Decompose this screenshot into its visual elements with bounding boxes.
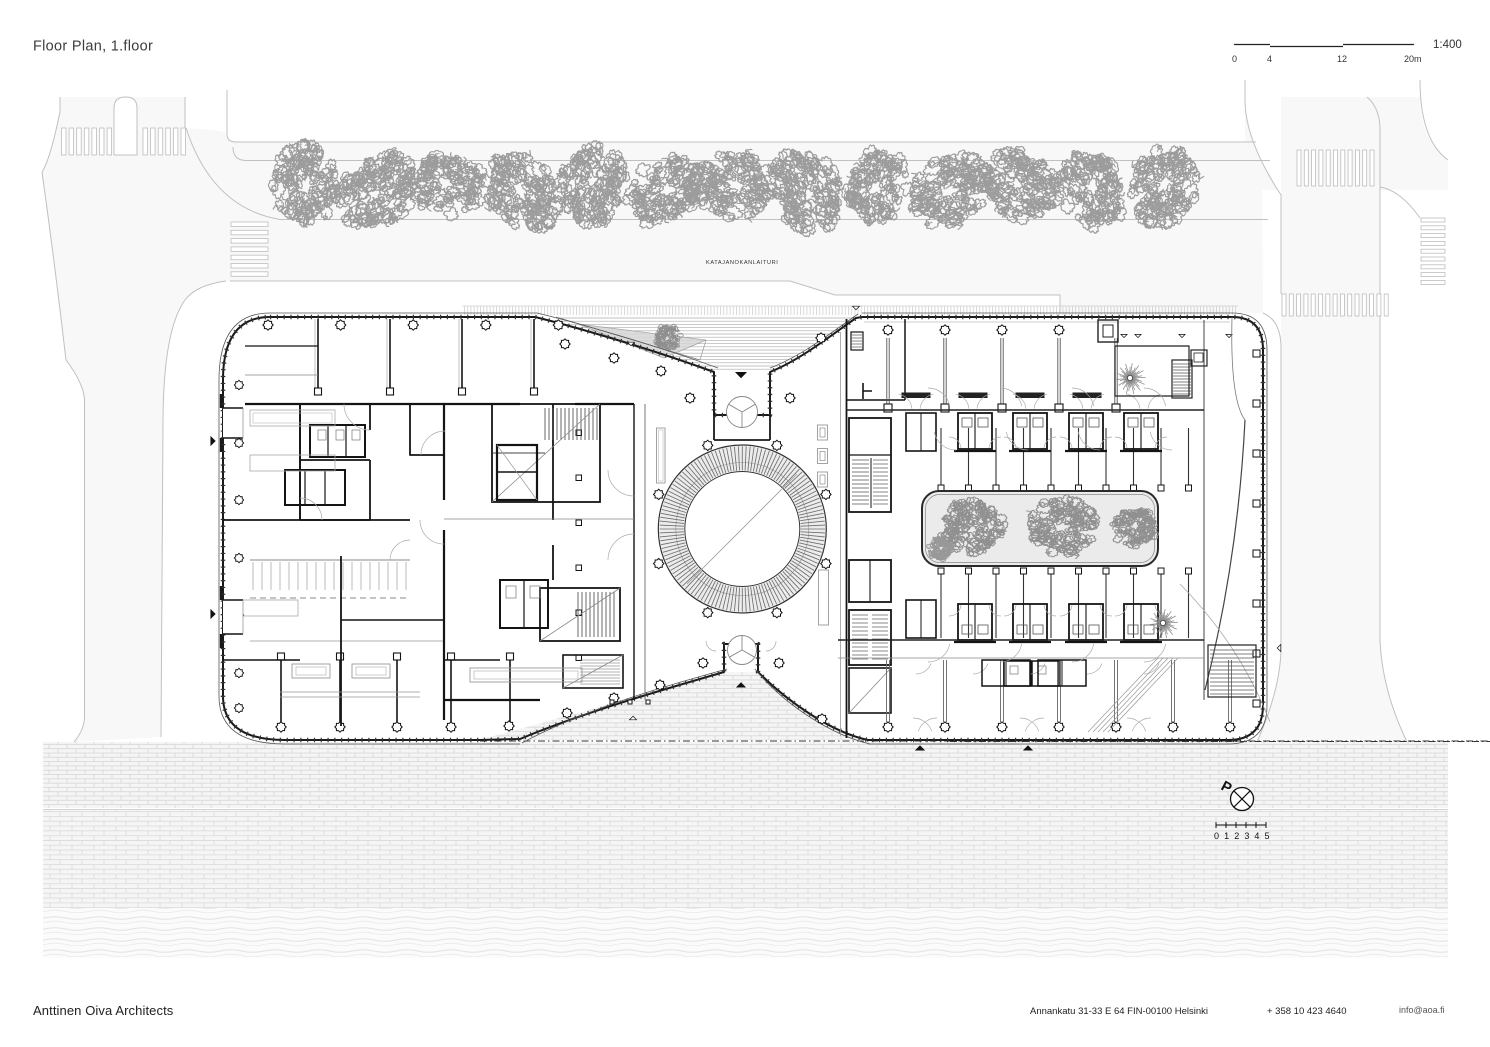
svg-text:Anttinen Oiva Architects: Anttinen Oiva Architects <box>33 1003 174 1018</box>
svg-text:0: 0 <box>1232 54 1237 64</box>
svg-text:info@aoa.fi: info@aoa.fi <box>1399 1005 1445 1015</box>
svg-text:Floor Plan, 1.floor: Floor Plan, 1.floor <box>33 39 153 55</box>
svg-text:+ 358 10 423 4640: + 358 10 423 4640 <box>1267 1006 1347 1017</box>
svg-text:1:400: 1:400 <box>1433 39 1462 51</box>
svg-text:12: 12 <box>1337 54 1347 64</box>
svg-text:4: 4 <box>1267 54 1272 64</box>
svg-text:KATAJANOKANLAITURI: KATAJANOKANLAITURI <box>706 260 778 266</box>
svg-text:Annankatu 31-33 E 64 FIN-00100: Annankatu 31-33 E 64 FIN-00100 Helsinki <box>1030 1006 1208 1017</box>
svg-text:0 1 2 3 4 5: 0 1 2 3 4 5 <box>1214 831 1271 841</box>
svg-text:20m: 20m <box>1404 54 1422 64</box>
